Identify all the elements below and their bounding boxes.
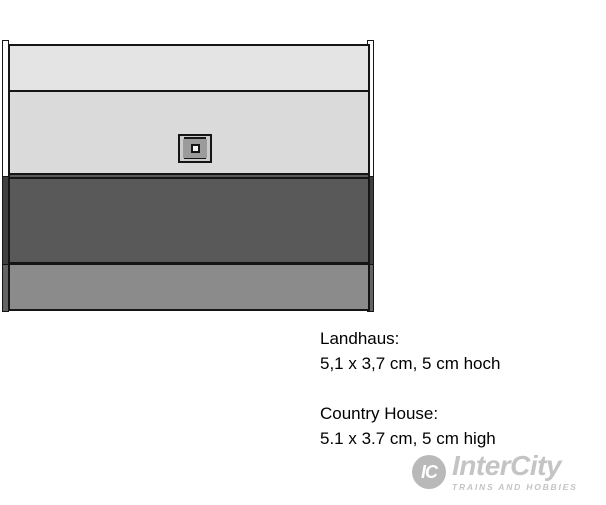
caption-german: Landhaus: 5,1 x 3,7 cm, 5 cm hoch [320, 326, 500, 376]
chimney-cap [191, 144, 200, 153]
base-band [10, 265, 368, 309]
brand-logo: IC InterCity TRAINS AND HOBBIES [412, 452, 578, 492]
brand-tagline: TRAINS AND HOBBIES [452, 482, 578, 492]
roof-band-main [10, 92, 368, 173]
product-dimensions-en: 5.1 x 3.7 cm, 5 cm high [320, 426, 500, 451]
house-body-drawing [8, 44, 370, 311]
product-title-en: Country House: [320, 401, 500, 426]
product-title-de: Landhaus: [320, 326, 500, 351]
product-image: Landhaus: 5,1 x 3,7 cm, 5 cm hoch Countr… [0, 0, 606, 505]
caption-block: Landhaus: 5,1 x 3,7 cm, 5 cm hoch Countr… [320, 326, 500, 451]
chimney-top-view [178, 134, 212, 163]
brand-name: InterCity [452, 452, 578, 480]
intercity-monogram-icon: IC [412, 455, 446, 489]
monogram-text: IC [421, 462, 437, 483]
roof-band-shadow [10, 179, 368, 262]
logo-text-block: InterCity TRAINS AND HOBBIES [452, 452, 578, 492]
product-dimensions-de: 5,1 x 3,7 cm, 5 cm hoch [320, 351, 500, 376]
caption-english: Country House: 5.1 x 3.7 cm, 5 cm high [320, 401, 500, 451]
roof-band-upper [10, 46, 368, 90]
